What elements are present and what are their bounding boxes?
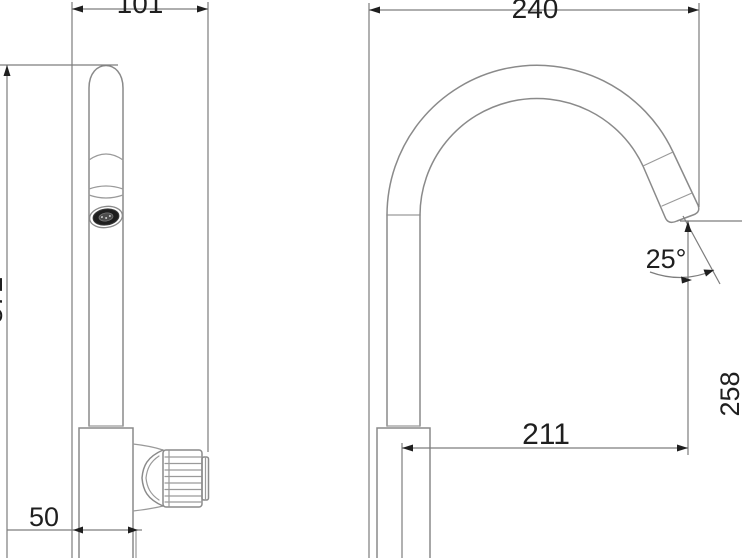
dim-outlet-offset-label: 211 xyxy=(522,418,570,451)
side-view: 101 372 50 xyxy=(0,0,209,558)
base-block xyxy=(79,428,133,558)
faucet-body-outline xyxy=(89,66,123,427)
dimension-50: 50 xyxy=(7,502,142,534)
handle-transition xyxy=(133,444,163,511)
dim-spout-reach-label: 240 xyxy=(512,0,559,24)
faucet-technical-drawing: 101 372 50 xyxy=(0,0,742,558)
handle-knob xyxy=(163,450,209,507)
tip-seam-lower xyxy=(662,193,692,206)
aerator-outlet xyxy=(88,204,124,229)
dimension-372: 372 xyxy=(0,65,118,558)
spout-outer-arc xyxy=(387,65,673,215)
body-seam-lower xyxy=(89,195,123,198)
dimension-101: 101 xyxy=(72,0,208,558)
spout-inner-arc xyxy=(420,99,643,215)
dimension-258: 258 xyxy=(685,221,742,417)
body-seam-mid xyxy=(89,186,123,189)
body-seam-upper xyxy=(89,154,123,160)
front-view: 240 25° 258 211 xyxy=(369,0,742,558)
tip-seam-upper xyxy=(643,152,673,166)
dimension-240: 240 xyxy=(369,0,699,558)
dim-total-height-label: 372 xyxy=(0,277,8,324)
dim-outlet-height-label: 258 xyxy=(715,371,742,416)
dim-base-depth-label: 50 xyxy=(29,502,59,532)
dim-side-width-label: 101 xyxy=(117,0,164,19)
dim-spout-angle-label: 25° xyxy=(646,244,687,274)
dimension-211: 211 xyxy=(402,418,688,558)
dimension-angle-25: 25° xyxy=(646,216,742,455)
